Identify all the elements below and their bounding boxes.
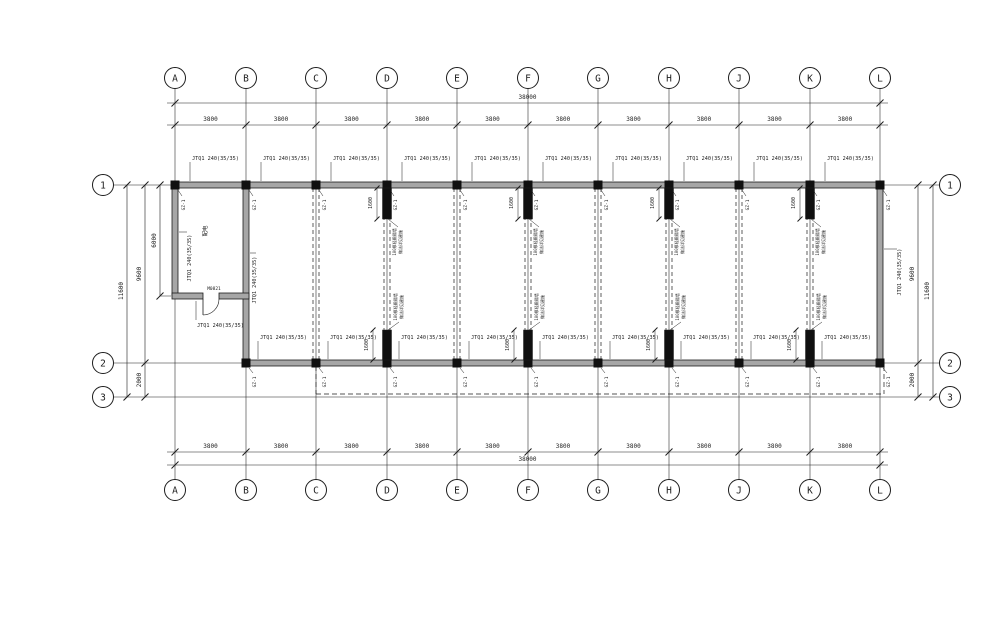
- partition-note-bottom-K: 100厚轻质隔墙: [815, 293, 821, 320]
- grid-bubble-left-3-label: 3: [100, 392, 106, 403]
- wall-type-label-row2-bay-C: JTQ1 240(35/35): [330, 335, 377, 341]
- pier-dim-label-top-K: 1600: [791, 197, 797, 209]
- partition-note-bottom-H: 100厚轻质隔墙: [674, 293, 680, 320]
- column-tag-row1-D: GZ-1: [393, 199, 399, 210]
- partition-note-bottom-D: 100厚轻质隔墙: [392, 293, 398, 320]
- column-tag-row2-C: GZ-1: [322, 376, 328, 387]
- grid-bubble-bottom-F-label: F: [525, 485, 531, 496]
- column-marker-row2-J: [735, 359, 744, 368]
- column-tag-row2-B: GZ-1: [252, 376, 258, 387]
- partition-note-bottom-D: 做法详见建施: [398, 295, 404, 319]
- column-marker-row2-B: [242, 359, 251, 368]
- grid-bubble-right-3-label: 3: [947, 392, 953, 403]
- dim-label-room-depth: 6000: [151, 233, 158, 248]
- grid-bubble-right-2-label: 2: [947, 358, 953, 369]
- dim-label-top-bay: 3800: [274, 116, 289, 123]
- column-tag-row1-C: GZ-1: [322, 199, 328, 210]
- wall-room-bottom-seg1: [172, 293, 203, 299]
- column-tag-row2-D: GZ-1: [393, 376, 399, 387]
- column-tag-leader: [390, 368, 394, 373]
- partition-note-bottom-K: 做法详见建施: [821, 295, 827, 319]
- grid-bubble-top-D-label: D: [384, 73, 390, 84]
- column-tag-leader: [319, 368, 323, 373]
- partition-note-top-F: 做法详见建施: [538, 230, 544, 254]
- column-tag-row2-K: GZ-1: [816, 376, 822, 387]
- column-tag-leader: [249, 368, 253, 373]
- dim-label-left-2000: 2000: [136, 372, 143, 387]
- dim-label-right-2000: 2000: [909, 372, 916, 387]
- dim-label-top-bay: 3800: [697, 116, 712, 123]
- note-leader-top-D: [388, 219, 398, 227]
- wall-type-label-row2-bay-G: JTQ1 240(35/35): [612, 335, 659, 341]
- dim-label-top-bay: 3800: [485, 116, 500, 123]
- grid-bubble-bottom-G-label: G: [595, 485, 601, 496]
- partition-note-top-F: 100厚轻质隔墙: [532, 228, 538, 255]
- grid-bubble-bottom-J-label: J: [736, 485, 742, 496]
- column-tag-row1-B: GZ-1: [252, 199, 258, 210]
- column-tag-row2-H: GZ-1: [675, 376, 681, 387]
- dim-label-top-bay: 3800: [838, 116, 853, 123]
- dim-label-bottom-bay: 3800: [838, 443, 853, 450]
- wall-type-label-row2-bay-D: JTQ1 240(35/35): [401, 335, 448, 341]
- dim-label-right-9600: 9600: [909, 266, 916, 281]
- grid-bubble-top-L-label: L: [877, 73, 883, 84]
- dim-label-bottom-bay: 3800: [344, 443, 359, 450]
- wall-type-label-wall-L: JTQ1 240(35/35): [897, 249, 903, 296]
- dim-label-left-9600: 9600: [136, 266, 143, 281]
- drawing-sheet: AABBCCDDEEFFGGHHJJKKLL112233380003800380…: [0, 0, 992, 638]
- pier-bottom-F: [524, 330, 533, 360]
- note-leader-top-K: [811, 219, 821, 227]
- pier-dim-label-top-H: 1600: [650, 197, 656, 209]
- wall-type-label-top-bay-A: JTQ1 240(35/35): [192, 156, 239, 162]
- column-tag-leader: [460, 190, 464, 196]
- grid-bubble-top-E-label: E: [454, 73, 460, 84]
- wall-type-label-wall-B: JTQ1 240(35/35): [252, 257, 258, 304]
- dim-label-top-bay: 3800: [203, 116, 218, 123]
- column-tag-row2-F: GZ-1: [534, 376, 540, 387]
- column-tag-row2-G: GZ-1: [604, 376, 610, 387]
- wall-type-label-row2-bay-K: JTQ1 240(35/35): [824, 335, 871, 341]
- door-label: M0821: [207, 286, 221, 292]
- pier-top-F: [524, 188, 533, 219]
- wall-type-label-wall-A: JTQ1 240(35/35): [187, 235, 193, 282]
- column-tag-row1-F: GZ-1: [534, 199, 540, 210]
- note-leader-top-F: [529, 219, 539, 227]
- pier-dim-label-top-F: 1600: [509, 197, 515, 209]
- dim-label-bottom-bay: 3800: [767, 443, 782, 450]
- column-tag-row1-K: GZ-1: [816, 199, 822, 210]
- pier-top-D: [383, 188, 392, 219]
- dim-label-bottom-bay: 3800: [415, 443, 430, 450]
- dim-label-left-total: 11600: [118, 282, 125, 300]
- grid-bubble-bottom-H-label: H: [666, 485, 672, 496]
- door-arc: [203, 299, 219, 315]
- wall-type-label-top-bay-B: JTQ1 240(35/35): [263, 156, 310, 162]
- grid-bubble-bottom-B-label: B: [243, 485, 249, 496]
- partition-note-bottom-F: 做法详见建施: [539, 295, 545, 319]
- partition-note-top-D: 100厚轻质隔墙: [391, 228, 397, 255]
- dim-label-bottom-total: 38000: [518, 456, 536, 463]
- column-tag-row2-E: GZ-1: [463, 376, 469, 387]
- column-tag-row1-E: GZ-1: [463, 199, 469, 210]
- wall-type-label-row2-bay-H: JTQ1 240(35/35): [683, 335, 730, 341]
- grid-bubble-bottom-L-label: L: [877, 485, 883, 496]
- grid-bubble-top-B-label: B: [243, 73, 249, 84]
- pier-top-K: [806, 188, 815, 219]
- grid-bubble-top-F-label: F: [525, 73, 531, 84]
- partition-note-top-H: 做法详见建施: [679, 230, 685, 254]
- dim-label-top-bay: 3800: [344, 116, 359, 123]
- pier-bottom-K: [806, 330, 815, 360]
- pier-top-H: [665, 188, 674, 219]
- pier-dim-label-top-D: 1600: [368, 197, 374, 209]
- column-tag-leader: [178, 190, 182, 196]
- partition-note-top-K: 做法详见建施: [820, 230, 826, 254]
- grid-bubble-bottom-E-label: E: [454, 485, 460, 496]
- column-marker-row2-E: [453, 359, 462, 368]
- grid-bubble-left-1-label: 1: [100, 180, 106, 191]
- column-tag-row1-L: GZ-1: [886, 199, 892, 210]
- wall-room-bottom-seg2: [219, 293, 249, 299]
- wall-type-label-top-bay-J: JTQ1 240(35/35): [756, 156, 803, 162]
- wall-type-label-top-bay-G: JTQ1 240(35/35): [615, 156, 662, 162]
- column-marker-row1-A: [171, 181, 180, 190]
- column-marker-row1-J: [735, 181, 744, 190]
- grid-bubble-top-J-label: J: [736, 73, 742, 84]
- column-tag-leader: [742, 190, 746, 196]
- grid-bubble-bottom-K-label: K: [807, 485, 813, 496]
- dim-label-right-total: 11600: [924, 282, 931, 300]
- dim-label-top-total: 38000: [518, 94, 536, 101]
- dim-label-bottom-bay: 3800: [697, 443, 712, 450]
- grid-bubble-right-1-label: 1: [947, 180, 953, 191]
- column-tag-leader: [601, 368, 605, 373]
- dim-label-top-bay: 3800: [415, 116, 430, 123]
- grid-bubble-top-H-label: H: [666, 73, 672, 84]
- grid-bubble-top-K-label: K: [807, 73, 813, 84]
- column-marker-row1-G: [594, 181, 603, 190]
- dim-label-top-bay: 3800: [556, 116, 571, 123]
- wall-type-label-top-bay-H: JTQ1 240(35/35): [686, 156, 733, 162]
- partition-note-bottom-F: 100厚轻质隔墙: [533, 293, 539, 320]
- column-tag-leader: [672, 368, 676, 373]
- grid-bubble-left-2-label: 2: [100, 358, 106, 369]
- wall-type-label-row2-bay-B: JTQ1 240(35/35): [260, 335, 307, 341]
- dim-label-bottom-bay: 3800: [556, 443, 571, 450]
- column-tag-leader: [742, 368, 746, 373]
- column-tag-row1-J: GZ-1: [745, 199, 751, 210]
- column-tag-leader: [319, 190, 323, 196]
- grid-bubble-top-G-label: G: [595, 73, 601, 84]
- pier-bottom-H: [665, 330, 674, 360]
- column-tag-leader: [249, 190, 253, 196]
- dim-label-top-bay: 3800: [626, 116, 641, 123]
- pier-bottom-D: [383, 330, 392, 360]
- column-tag-row2-J: GZ-1: [745, 376, 751, 387]
- partition-note-top-K: 100厚轻质隔墙: [814, 228, 820, 255]
- floor-plan-drawing: AABBCCDDEEFFGGHHJJKKLL112233380003800380…: [0, 0, 992, 638]
- wall-left-colA: [172, 182, 178, 296]
- wall-type-label-top-bay-C: JTQ1 240(35/35): [333, 156, 380, 162]
- wall-bottom-row2: [242, 360, 884, 366]
- column-marker-row2-C: [312, 359, 321, 368]
- column-tag-row1-H: GZ-1: [675, 199, 681, 210]
- dim-label-top-bay: 3800: [767, 116, 782, 123]
- wall-type-label-room-bottom: JTQ1 240(35/35): [197, 323, 244, 329]
- wall-type-label-row2-bay-F: JTQ1 240(35/35): [542, 335, 589, 341]
- note-leader-top-H: [670, 219, 680, 227]
- grid-bubble-bottom-D-label: D: [384, 485, 390, 496]
- room-label: 配电: [201, 225, 209, 237]
- wall-type-label-row2-bay-E: JTQ1 240(35/35): [471, 335, 518, 341]
- column-marker-row2-G: [594, 359, 603, 368]
- column-tag-row2-L: GZ-1: [886, 376, 892, 387]
- grid-bubble-top-C-label: C: [313, 73, 319, 84]
- partition-note-bottom-H: 做法详见建施: [680, 295, 686, 319]
- column-tag-leader: [531, 368, 535, 373]
- dim-label-bottom-bay: 3800: [626, 443, 641, 450]
- wall-colB: [243, 182, 249, 366]
- column-marker-row1-L: [876, 181, 885, 190]
- column-tag-leader: [601, 190, 605, 196]
- wall-type-label-top-bay-E: JTQ1 240(35/35): [474, 156, 521, 162]
- column-tag-leader: [883, 368, 887, 373]
- wall-type-label-top-bay-K: JTQ1 240(35/35): [827, 156, 874, 162]
- column-marker-row1-E: [453, 181, 462, 190]
- wall-type-label-row2-bay-J: JTQ1 240(35/35): [753, 335, 800, 341]
- grid-bubble-bottom-C-label: C: [313, 485, 319, 496]
- column-marker-row1-C: [312, 181, 321, 190]
- wall-right-colL: [877, 182, 883, 366]
- column-marker-row2-L: [876, 359, 885, 368]
- dim-label-bottom-bay: 3800: [203, 443, 218, 450]
- wall-type-label-top-bay-D: JTQ1 240(35/35): [404, 156, 451, 162]
- dim-label-bottom-bay: 3800: [274, 443, 289, 450]
- column-marker-row1-B: [242, 181, 251, 190]
- column-tag-row1-A: GZ-1: [181, 199, 187, 210]
- wall-type-label-top-bay-F: JTQ1 240(35/35): [545, 156, 592, 162]
- partition-note-top-D: 做法详见建施: [397, 230, 403, 254]
- dim-label-bottom-bay: 3800: [485, 443, 500, 450]
- grid-bubble-top-A-label: A: [172, 73, 178, 84]
- column-tag-leader: [813, 368, 817, 373]
- grid-bubble-bottom-A-label: A: [172, 485, 178, 496]
- column-tag-row1-G: GZ-1: [604, 199, 610, 210]
- column-tag-leader: [883, 190, 887, 196]
- partition-note-top-H: 100厚轻质隔墙: [673, 228, 679, 255]
- column-tag-leader: [460, 368, 464, 373]
